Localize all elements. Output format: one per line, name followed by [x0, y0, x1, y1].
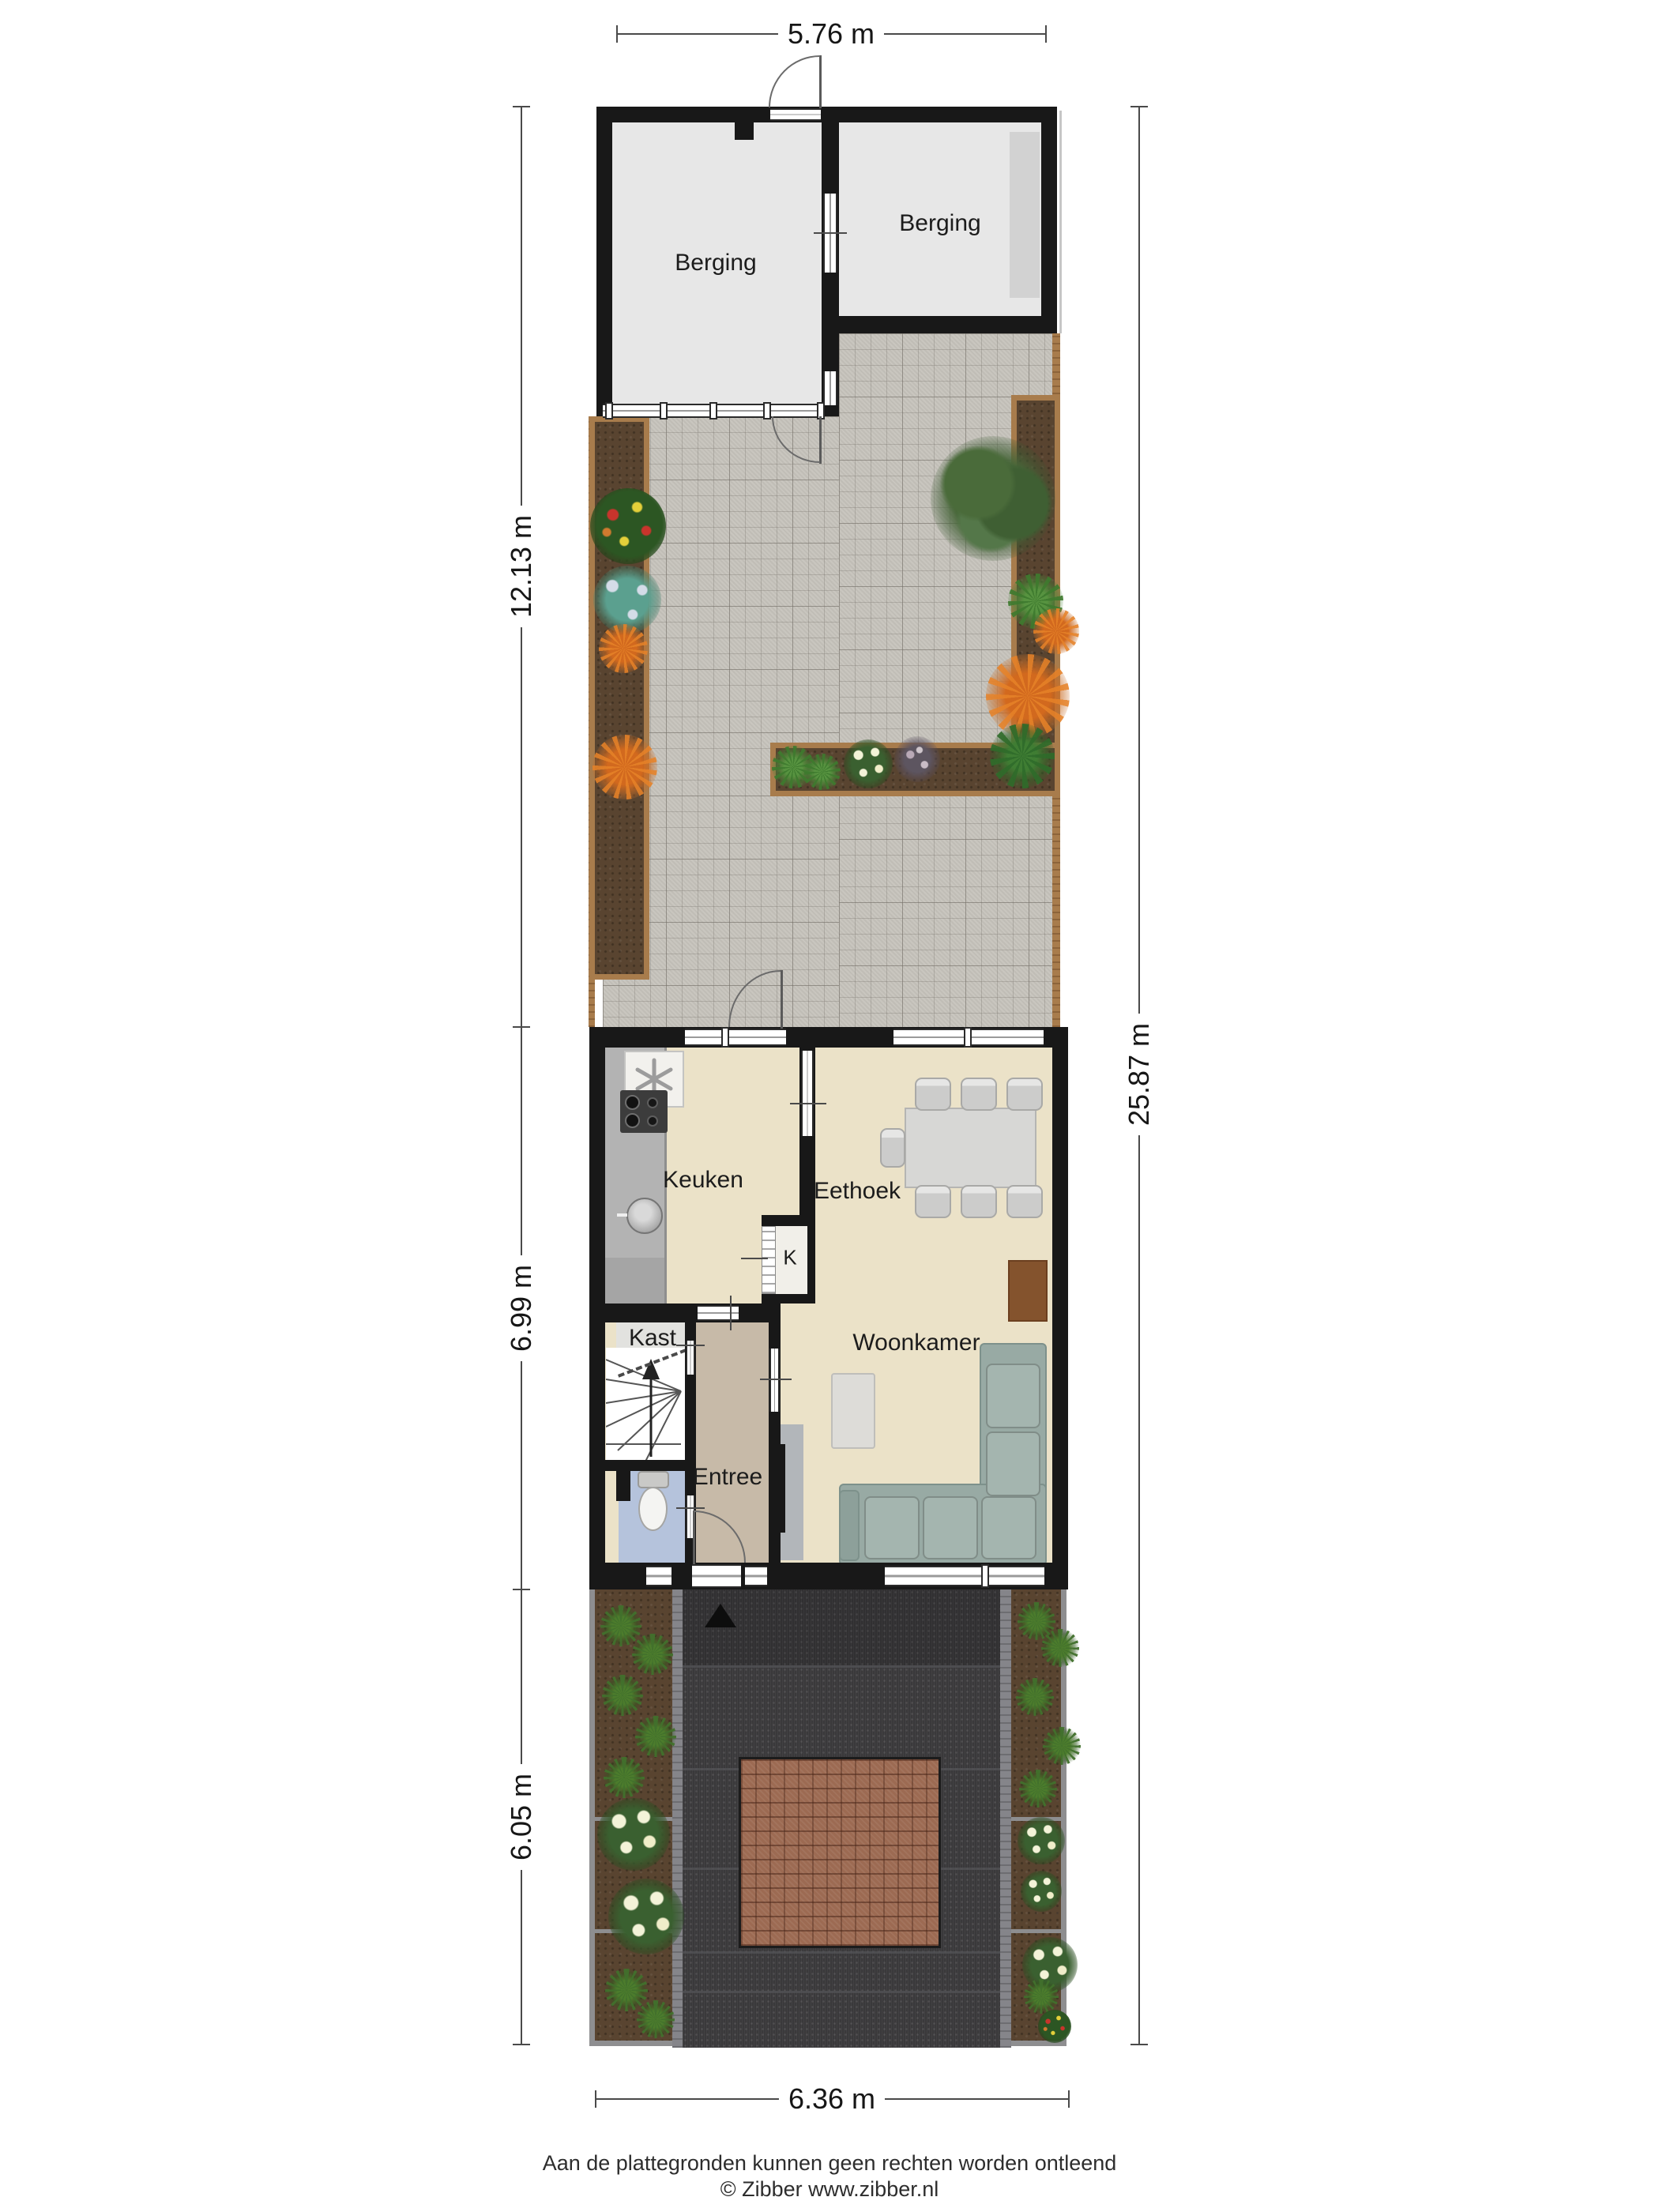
sink-faucet: [617, 1213, 627, 1217]
burner: [647, 1097, 658, 1108]
dim-tick: [1045, 25, 1047, 43]
white-flowers: [844, 739, 893, 788]
garden-tree: [931, 436, 1055, 561]
berging-shelf: [1010, 132, 1040, 298]
berging-right-wall-bottom: [839, 316, 1057, 333]
sideboard: [1008, 1260, 1048, 1322]
fern-plant: [990, 724, 1055, 788]
berging-door-threshold: [770, 108, 821, 121]
dining-chair: [915, 1185, 951, 1218]
dining-chair: [915, 1078, 951, 1111]
grass-tuft: [637, 2000, 675, 2038]
curb-line: [1011, 1929, 1061, 1933]
wall-stairs-bottom: [605, 1460, 685, 1471]
door-tick: [676, 1507, 705, 1509]
paving-seam: [683, 1991, 1000, 1993]
dining-chair: [961, 1185, 997, 1218]
front-curb-left: [672, 1589, 683, 2048]
window-mullion: [709, 402, 717, 419]
dim-label-house: 6.99 m: [505, 1255, 538, 1361]
room-label-berging-left: Berging: [675, 250, 756, 276]
front-door-threshold: [692, 1564, 741, 1588]
flower-cluster: [1018, 1817, 1065, 1864]
grass-tuft: [635, 1716, 676, 1757]
dim-label-total: 25.87 m: [1123, 1014, 1156, 1135]
toilet-bowl: [638, 1487, 668, 1531]
small-red-plant: [1038, 2010, 1071, 2043]
opening-tick: [730, 1296, 732, 1330]
high-chair: [880, 1128, 905, 1168]
window-tick: [814, 232, 847, 234]
room-label-eethoek: Eethoek: [814, 1178, 901, 1205]
flower-cluster: [1021, 1871, 1062, 1912]
grass-tuft: [1019, 1770, 1057, 1808]
berging-divider-window-2: [823, 371, 837, 405]
kitchen-window: [685, 1029, 726, 1046]
house-garden-door-leaf: [781, 970, 783, 1029]
k-tick: [741, 1258, 768, 1259]
dim-label-bottom: 6.36 m: [779, 2082, 885, 2116]
sofa-armrest: [839, 1490, 860, 1561]
kitchen-round-sink: [626, 1198, 663, 1234]
burner: [625, 1113, 640, 1128]
paving-seam: [683, 1665, 1000, 1668]
footer: Aan de plattegronden kunnen geen rechten…: [543, 2150, 1117, 2203]
orange-plant-small-2: [592, 735, 657, 799]
kitchen-counter-lower: [605, 1258, 664, 1303]
sofa-cushion: [864, 1496, 920, 1559]
sofa-cushion: [923, 1496, 978, 1559]
front-sidelight: [745, 1566, 767, 1586]
orange-plant-small: [599, 624, 648, 673]
room-label-entree: Entree: [693, 1464, 762, 1491]
grass-tuft: [602, 1675, 643, 1716]
garden-door-threshold: [726, 1029, 786, 1046]
dim-label-top: 5.76 m: [778, 17, 884, 51]
stove: [620, 1090, 668, 1133]
dim-tick: [595, 2090, 596, 2108]
house-wall-left: [589, 1027, 605, 1589]
dim-tick: [513, 1026, 530, 1028]
front-curb-right: [1000, 1589, 1011, 2048]
room-label-woonkamer: Woonkamer: [852, 1330, 980, 1356]
berging-wall-stub: [735, 122, 754, 140]
dining-chair: [961, 1078, 997, 1111]
room-label-keuken: Keuken: [663, 1167, 743, 1194]
grass-tuft: [632, 1634, 673, 1675]
grass-tuft: [1041, 1629, 1079, 1667]
toilet-window: [646, 1566, 671, 1586]
house-wall-right: [1052, 1027, 1068, 1589]
window-mullion: [605, 402, 613, 419]
brick-pad: [739, 1757, 941, 1948]
flower-bush: [590, 488, 666, 564]
grass-tuft: [1024, 1979, 1059, 2014]
niche-bar: [779, 1444, 785, 1533]
room-label-berging-right: Berging: [899, 210, 980, 237]
coffee-table: [831, 1373, 875, 1449]
dining-chair: [1006, 1078, 1043, 1111]
berging-wall-left: [596, 107, 612, 416]
grass-tuft: [605, 1969, 648, 2011]
grass-plant-b: [804, 754, 841, 790]
dim-tick: [513, 106, 530, 107]
dining-chair: [1006, 1185, 1043, 1218]
opening-tick: [790, 1103, 826, 1104]
room-label-kast: Kast: [629, 1325, 676, 1352]
grass-tuft: [600, 1605, 641, 1646]
dim-tick: [616, 25, 618, 43]
sofa-cushion: [981, 1496, 1036, 1559]
orange-bush-small: [1033, 608, 1079, 654]
k-closet-shelves: [762, 1226, 776, 1294]
door-tick: [676, 1345, 705, 1346]
berging-roof-line: [1059, 111, 1062, 333]
woonkamer-window: [885, 1566, 1044, 1586]
woonkamer-door: [769, 1349, 780, 1412]
flower-cluster: [597, 1798, 670, 1871]
dim-tick: [513, 1589, 530, 1590]
berging-door-arc: [769, 55, 820, 107]
sofa-cushion: [986, 1431, 1040, 1496]
door-tick: [760, 1379, 792, 1380]
grass-tuft: [604, 1757, 645, 1798]
dining-table: [905, 1108, 1036, 1188]
dry-sprigs: [894, 736, 940, 782]
dim-tick: [513, 2044, 530, 2045]
berging-wall-right: [1041, 107, 1057, 333]
flower-cluster: [608, 1879, 684, 1954]
middle-upper-opening: [801, 1051, 814, 1136]
teal-plant: [593, 566, 661, 634]
window-mullion: [721, 1027, 729, 1048]
dim-tick: [1130, 106, 1148, 107]
window-mullion: [660, 402, 668, 419]
dim-tick: [1130, 2044, 1148, 2045]
toilet-tank: [638, 1471, 669, 1488]
burner: [625, 1095, 640, 1110]
floorplan-canvas: Berging Berging: [0, 0, 1659, 2212]
burner: [647, 1115, 658, 1127]
footer-disclaimer: Aan de plattegronden kunnen geen rechten…: [543, 2150, 1117, 2176]
paving-seam: [683, 1951, 1000, 1954]
k-closet-wall-right: [807, 1215, 815, 1303]
dim-label-front-garden: 6.05 m: [505, 1764, 538, 1870]
window-mullion: [981, 1564, 989, 1588]
dim-tick: [1068, 2090, 1070, 2108]
window-mullion: [964, 1027, 972, 1048]
toilet-wall-stub: [616, 1471, 630, 1501]
window-mullion: [763, 402, 771, 419]
entree-opening: [698, 1305, 739, 1321]
grass-tuft: [1043, 1727, 1081, 1765]
footer-credit: © Zibber www.zibber.nl: [543, 2176, 1117, 2203]
sofa-cushion: [986, 1364, 1040, 1428]
room-label-k: K: [783, 1246, 796, 1270]
grass-tuft: [1016, 1678, 1054, 1716]
dim-label-back-garden: 12.13 m: [505, 506, 538, 627]
entrance-arrow: [705, 1604, 736, 1627]
paving-top-band: [683, 1589, 1000, 1665]
